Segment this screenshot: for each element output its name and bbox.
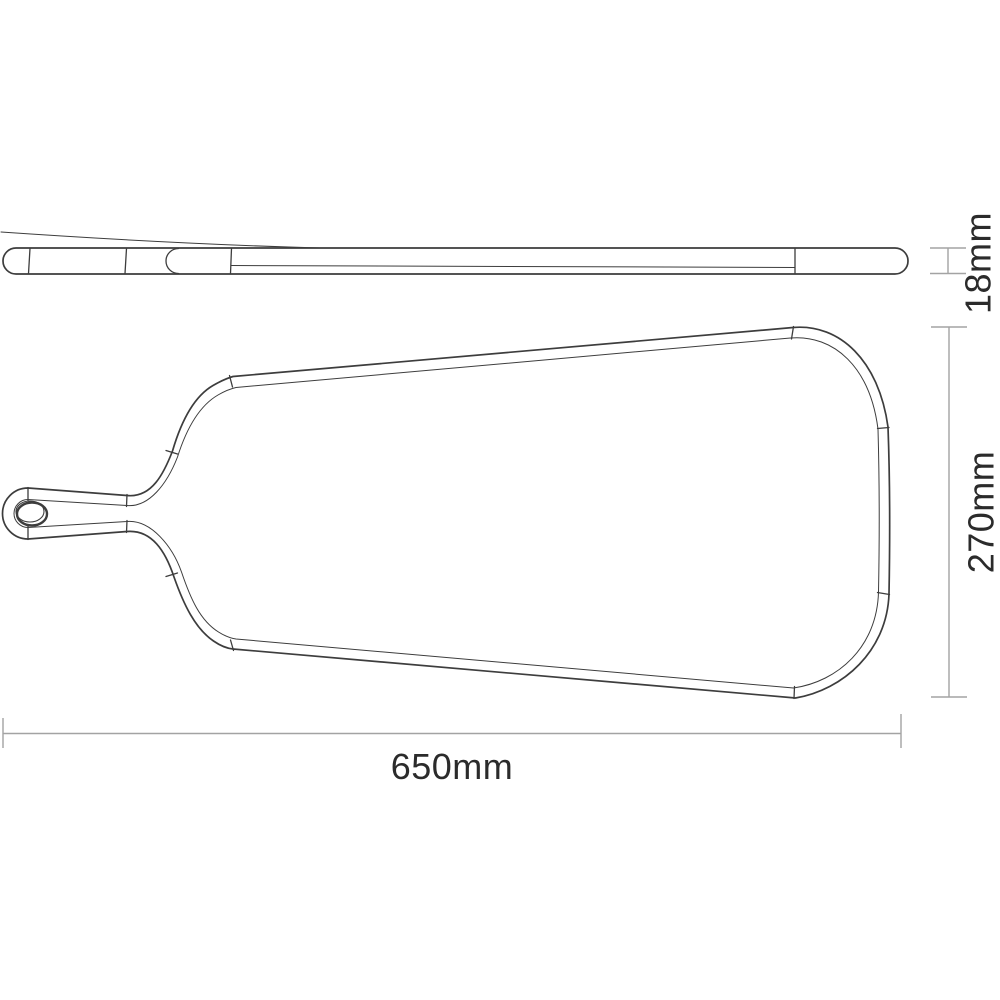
dimension-length xyxy=(3,714,901,748)
dimension-height-label: 270mm xyxy=(961,451,1000,574)
outline-seam xyxy=(166,573,178,577)
top-view xyxy=(3,327,890,699)
side-view-outline xyxy=(3,248,908,274)
outline-seam xyxy=(794,687,795,699)
side-view-top-tangent-line xyxy=(1,232,320,248)
handle-hole-chamfer xyxy=(16,501,44,522)
side-view-seam xyxy=(29,249,31,274)
technical-drawing-page: 18mm 270mm 650mm xyxy=(0,0,1000,1000)
dimension-length-label: 650mm xyxy=(391,746,514,787)
dimension-thickness-label: 18mm xyxy=(958,212,999,314)
side-view xyxy=(1,232,908,274)
outline-seam xyxy=(878,593,890,595)
board-outer-outline xyxy=(3,327,890,698)
side-view-hole-arc xyxy=(166,249,179,274)
board-technical-drawing: 18mm 270mm 650mm xyxy=(0,0,1000,1000)
outline-seam xyxy=(127,495,128,507)
dimension-length-lines xyxy=(3,714,901,748)
side-view-seam xyxy=(231,249,232,274)
board-inner-outline xyxy=(14,338,879,688)
side-view-seam xyxy=(125,249,127,274)
side-view-bottom-tangent-line xyxy=(232,266,796,268)
outline-seam xyxy=(127,521,128,533)
